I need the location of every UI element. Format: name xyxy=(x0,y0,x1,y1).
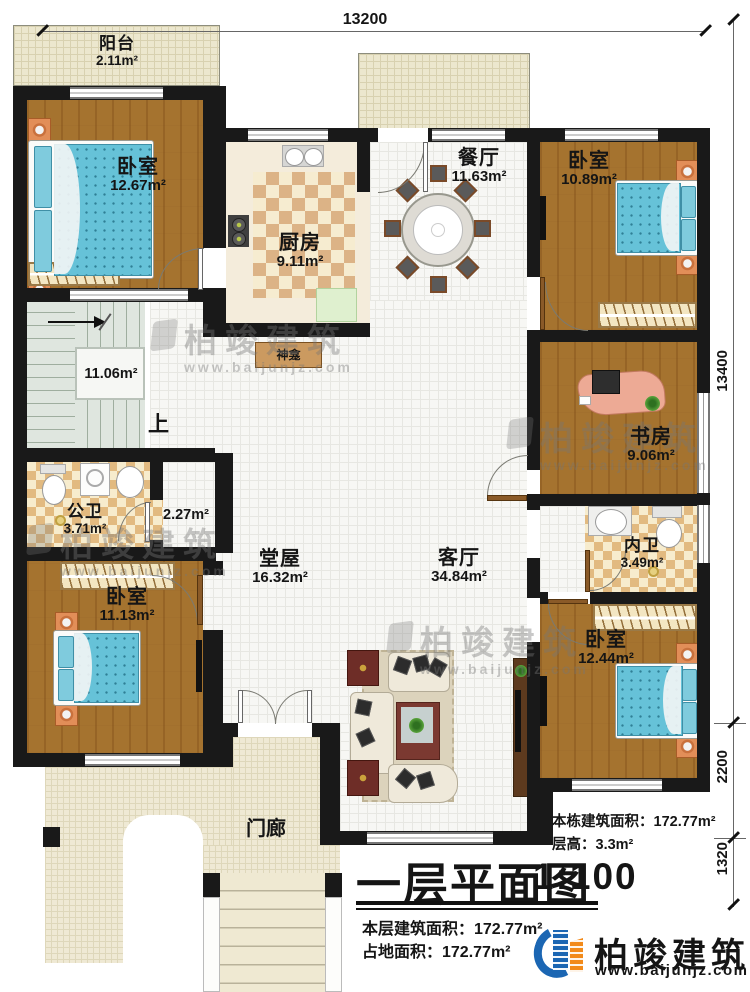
sink-basin xyxy=(304,148,323,166)
corridor-area-label: 2.27m² xyxy=(156,507,216,523)
wall xyxy=(150,462,163,500)
bed-pillow xyxy=(681,186,696,218)
wall xyxy=(527,330,710,342)
logo-website: www.baijunjz.com xyxy=(595,962,748,979)
entry-door-leaf-right xyxy=(307,690,312,723)
logo-building-orange xyxy=(570,938,583,972)
dimension-right-middle-label: 2200 xyxy=(714,750,731,783)
dimension-line-top xyxy=(42,31,706,32)
stair-direction-line xyxy=(48,321,94,323)
floor-plan: 神龛 xyxy=(0,0,750,992)
room-area: 9.06m² xyxy=(601,448,701,465)
keyboard xyxy=(579,396,591,405)
ensuite-entry-floor xyxy=(540,506,590,592)
watermark-text: 柏竣建筑 xyxy=(184,314,353,362)
steps-rail-right xyxy=(325,897,342,992)
window xyxy=(70,289,188,301)
window xyxy=(70,87,163,99)
door-leaf xyxy=(198,248,203,290)
dimension-right-lower-label: 1320 xyxy=(714,842,731,875)
wall xyxy=(13,448,215,462)
bed-pillow xyxy=(681,219,696,251)
watermark-url: www.baijunjz.com xyxy=(60,563,229,579)
window xyxy=(565,129,658,141)
side-table xyxy=(347,760,379,796)
stove-burner xyxy=(232,232,246,246)
room-area: 3.49m² xyxy=(592,555,692,570)
wardrobe xyxy=(598,302,697,328)
room-name: 卧室 xyxy=(77,586,177,608)
bathroom-sink xyxy=(116,466,144,498)
window xyxy=(248,129,328,141)
tv xyxy=(515,690,521,752)
room-label-bedroom-bottom-left: 卧室 11.13m² xyxy=(77,586,177,625)
table-plant xyxy=(409,718,424,733)
steps-rail-left xyxy=(203,897,220,992)
window xyxy=(432,129,505,141)
entry-steps xyxy=(220,873,325,992)
tv xyxy=(196,640,202,692)
room-label-public-bathroom: 公卫 3.71m² xyxy=(35,502,135,536)
porch-corner-post xyxy=(43,827,60,847)
window xyxy=(85,754,180,766)
wall xyxy=(13,86,27,765)
room-label-bedroom-top-right: 卧室 10.89m² xyxy=(539,150,639,189)
chair xyxy=(474,220,491,237)
wall xyxy=(233,723,238,737)
room-name: 书房 xyxy=(601,426,701,448)
room-area: 11.13m² xyxy=(77,608,177,625)
dining-table-center xyxy=(431,223,445,237)
room-name: 餐厅 xyxy=(429,147,529,169)
bed-pillow xyxy=(682,669,697,701)
washer-door xyxy=(86,469,104,487)
side-table xyxy=(347,650,379,686)
room-label-ensuite-bathroom: 内卫 3.49m² xyxy=(592,536,692,570)
logo-building-blue xyxy=(553,930,568,970)
door-leaf xyxy=(548,599,588,604)
desk-plant xyxy=(645,396,660,411)
door-leaf xyxy=(585,550,590,592)
room-area: 9.11m² xyxy=(250,254,350,271)
room-name: 客厅 xyxy=(409,547,509,569)
wardrobe xyxy=(593,604,697,631)
room-name: 公卫 xyxy=(35,502,135,521)
toilet-tank xyxy=(652,506,682,518)
sofa-pillow xyxy=(355,699,373,717)
bed-pillow xyxy=(34,210,52,272)
floor-area-text: 本层建筑面积：172.77m² xyxy=(362,915,543,939)
sink-basin xyxy=(285,148,304,166)
window xyxy=(697,505,710,563)
wall xyxy=(527,342,540,470)
room-area: 12.67m² xyxy=(88,178,188,195)
wall xyxy=(203,723,233,767)
chair xyxy=(384,220,401,237)
bed-pillow xyxy=(682,702,697,734)
wall xyxy=(357,142,370,192)
tv xyxy=(540,196,546,240)
room-label-study: 书房 9.06m² xyxy=(601,426,701,465)
title-underline-thin xyxy=(356,908,598,910)
stairwell-area-label: 11.06m² xyxy=(78,366,144,382)
toilet-bowl xyxy=(42,475,66,505)
stove-burner xyxy=(232,218,246,232)
watermark-glyph xyxy=(506,416,534,449)
chair xyxy=(430,276,447,293)
room-name: 卧室 xyxy=(556,629,656,651)
nightstand xyxy=(55,703,78,726)
nightstand xyxy=(28,118,51,142)
building-total-area-text: 本栋建筑面积：172.77m² xyxy=(552,810,716,831)
room-label-hall: 堂屋 16.32m² xyxy=(230,548,330,587)
wall xyxy=(312,723,340,737)
room-name: 卧室 xyxy=(88,156,188,178)
step-post-left xyxy=(203,873,220,897)
room-label-dining: 餐厅 11.63m² xyxy=(429,147,529,186)
watermark-glyph xyxy=(150,318,178,351)
stair-treads-left xyxy=(27,300,75,455)
wall xyxy=(590,592,697,604)
dimension-line-right xyxy=(733,20,734,907)
porch-notch xyxy=(123,815,203,963)
wall xyxy=(527,494,540,510)
wall xyxy=(540,494,697,506)
room-label-bedroom-bottom-right: 卧室 12.44m² xyxy=(556,629,656,668)
dimension-top-label: 13200 xyxy=(325,11,405,29)
watermark: 柏竣建筑 www.baijunjz.com xyxy=(184,314,353,375)
room-area: 11.63m² xyxy=(429,169,529,186)
watermark-url: www.baijunjz.com xyxy=(184,359,353,375)
room-label-porch: 门廊 xyxy=(246,812,286,841)
floor-height-text: 层高：3.3m² xyxy=(552,833,633,854)
stair-up-label: 上 xyxy=(148,408,169,438)
tv xyxy=(540,676,547,726)
door-opening xyxy=(378,128,428,142)
dimension-right-upper-label: 13400 xyxy=(714,350,731,392)
watermark-glyph xyxy=(386,620,414,653)
window xyxy=(367,832,493,844)
rear-terrace-floor xyxy=(358,53,530,129)
room-area: 3.71m² xyxy=(35,521,135,536)
room-name: 内卫 xyxy=(592,536,692,555)
room-name: 卧室 xyxy=(539,150,639,172)
step-post-right xyxy=(325,873,342,897)
wall xyxy=(203,86,226,248)
room-label-living-room: 客厅 34.84m² xyxy=(409,547,509,586)
door-leaf xyxy=(423,142,428,192)
room-name: 厨房 xyxy=(250,232,350,254)
room-label-kitchen: 厨房 9.11m² xyxy=(250,232,350,271)
bathroom-sink xyxy=(595,509,627,535)
bed-sheet xyxy=(663,666,681,734)
room-area: 34.84m² xyxy=(409,569,509,586)
room-label-bedroom-top-left: 卧室 12.67m² xyxy=(88,156,188,195)
room-label-balcony: 阳台 2.11m² xyxy=(67,34,167,68)
wall xyxy=(540,592,548,604)
porch-right-strip xyxy=(203,845,340,873)
bed-pillow xyxy=(34,146,52,208)
bed-sheet xyxy=(661,183,679,251)
room-area: 10.89m² xyxy=(539,172,639,189)
door-leaf xyxy=(487,495,527,501)
bed-pillow xyxy=(58,669,74,701)
computer-monitor xyxy=(592,370,620,394)
door-leaf xyxy=(540,277,545,330)
wall xyxy=(320,737,340,845)
room-name: 堂屋 xyxy=(230,548,330,570)
toilet-tank xyxy=(40,464,66,474)
wall xyxy=(527,558,540,598)
room-area: 16.32m² xyxy=(230,570,330,587)
room-area: 12.44m² xyxy=(556,651,656,668)
footprint-area-text: 占地面积：172.77m² xyxy=(362,938,511,962)
porch-left-column xyxy=(45,845,123,963)
bed-pillow xyxy=(58,636,74,668)
room-name: 阳台 xyxy=(67,34,167,53)
room-area: 2.11m² xyxy=(67,53,167,68)
window xyxy=(572,779,662,791)
door-leaf xyxy=(197,575,203,625)
entry-door-leaf-left xyxy=(238,690,243,723)
title-underline-thick xyxy=(356,901,598,905)
plan-scale: 1:100 xyxy=(533,856,638,898)
